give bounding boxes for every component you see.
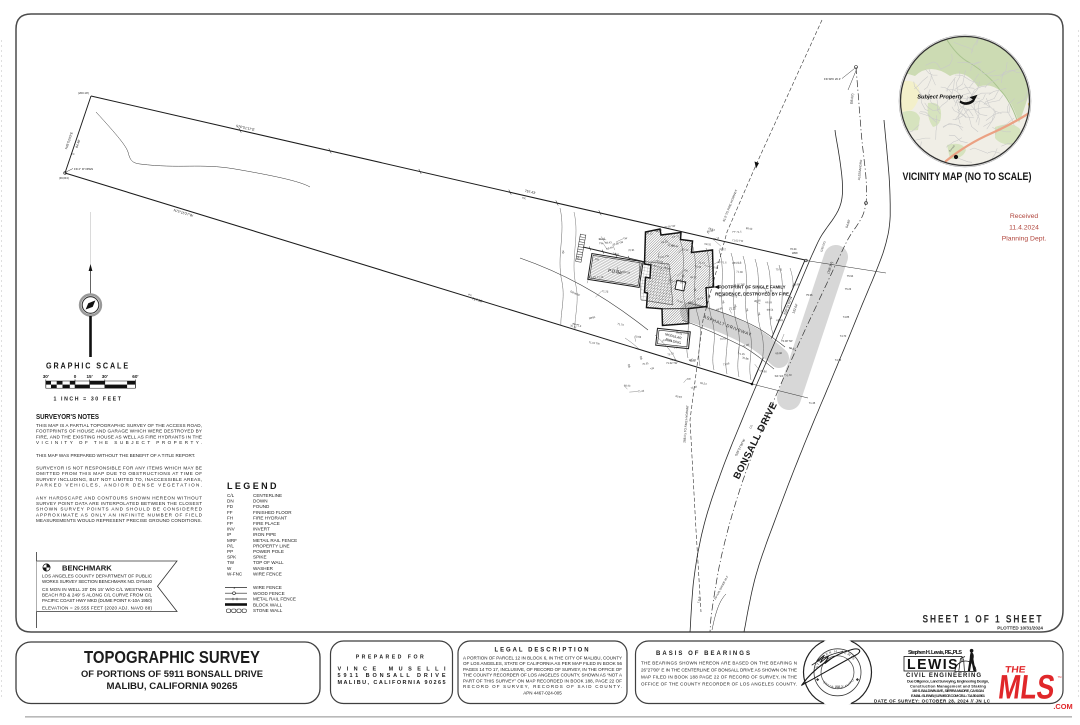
svg-text:68.98: 68.98 [775, 351, 782, 355]
svg-text:SURVEYOR'S NOTES: SURVEYOR'S NOTES [36, 412, 99, 421]
svg-text:W: W [227, 566, 232, 571]
svg-text:INVERT: INVERT [253, 527, 270, 532]
svg-text:70.91: 70.91 [775, 267, 782, 271]
svg-text:70.66: 70.66 [760, 369, 767, 374]
svg-text:METAL RAIL FENCE: METAL RAIL FENCE [253, 597, 296, 602]
svg-text:L 8812: L 8812 [832, 685, 842, 689]
svg-text:70.08 TW: 70.08 TW [781, 339, 793, 343]
svg-text:Received: Received [1010, 213, 1039, 220]
svg-text:THIS MAP IS A PARTIAL TOPOGRAP: THIS MAP IS A PARTIAL TOPOGRAPHIC SURVEY… [36, 423, 202, 428]
svg-text:FIRE HYDRANT: FIRE HYDRANT [253, 515, 287, 520]
svg-text:WIRE FENCE: WIRE FENCE [253, 585, 282, 590]
svg-text:RESIDENCE, DESTROYED BY FIRE: RESIDENCE, DESTROYED BY FIRE [715, 292, 789, 297]
svg-text:BASIS OF BEARINGS: BASIS OF BEARINGS [656, 650, 752, 657]
svg-text:WASHER: WASHER [253, 566, 274, 571]
svg-text:FIRE, AND THE EXISTING HOUSE A: FIRE, AND THE EXISTING HOUSE AS WELL AS … [36, 434, 202, 439]
svg-text:WOOD FENCE: WOOD FENCE [253, 591, 285, 596]
svg-text:POWER POLE: POWER POLE [253, 549, 284, 554]
svg-text:SPK: SPK [227, 555, 237, 560]
svg-text:0: 0 [74, 374, 77, 379]
svg-text:SURVEY INCLUDING, BUT NOT LIMI: SURVEY INCLUDING, BUT NOT LIMITED TO, IN… [36, 477, 202, 482]
svg-text:ANY HARDSCAPE AND CONTOURS SHO: ANY HARDSCAPE AND CONTOURS SHOWN HEREON … [36, 495, 202, 500]
svg-text:MALIBU, CALIFORNIA 90265: MALIBU, CALIFORNIA 90265 [338, 680, 446, 686]
svg-text:MAP FILED IN BOOK 188 PAGE 22: MAP FILED IN BOOK 188 PAGE 22 OF RECORD … [641, 675, 797, 680]
svg-text:CIVIL ENGINEERING: CIVIL ENGINEERING [906, 672, 982, 679]
svg-text:FD: FD [227, 504, 234, 509]
svg-text:PAGES 14 TO 17, INCLUSIVE, OF: PAGES 14 TO 17, INCLUSIVE, OF RECORD OF … [463, 667, 622, 672]
svg-text:70.45: 70.45 [667, 243, 674, 247]
svg-text:A PORTION OF PARCEL 12 IN BLOC: A PORTION OF PARCEL 12 IN BLOCK 6, IN TH… [463, 656, 622, 661]
svg-text:DATE OF SURVEY: OCTOBER 28, 20: DATE OF SURVEY: OCTOBER 28, 2024 // JN L… [874, 699, 991, 704]
svg-text:74.35: 74.35 [835, 358, 842, 362]
svg-text:71.02 TW: 71.02 TW [733, 282, 745, 287]
svg-text:71.02 TW: 71.02 TW [666, 361, 678, 365]
svg-text:VICINITY MAP (NO TO SCALE): VICINITY MAP (NO TO SCALE) [903, 171, 1032, 183]
svg-text:(200.19'): (200.19') [78, 91, 89, 95]
svg-text:169 S. BALDWIN AVE., SIERRA MA: 169 S. BALDWIN AVE., SIERRA MADRE, CA 91… [912, 689, 985, 693]
svg-text:FP: FP [227, 521, 233, 526]
svg-text:74.85: 74.85 [843, 315, 850, 319]
svg-text:IP: IP [227, 532, 231, 537]
svg-text:PLOTTED 10/31/2024: PLOTTED 10/31/2024 [997, 626, 1043, 631]
svg-text:71.73: 71.73 [597, 275, 604, 279]
svg-text:THIS MAP WAS PREPARED WITHOUT: THIS MAP WAS PREPARED WITHOUT THE BENEFI… [36, 453, 195, 458]
svg-text:APPROXIMATE AS ONLY AN INFINIT: APPROXIMATE AS ONLY AN INFINITE NUMBER O… [36, 512, 203, 517]
svg-text:15': 15' [86, 374, 92, 379]
svg-text:FF 71.5: FF 71.5 [663, 338, 673, 343]
svg-text:69.12: 69.12 [690, 275, 697, 279]
svg-text:FF 71.5: FF 71.5 [732, 230, 742, 234]
svg-text:MEASUREMENTS WOULD REPRESENT P: MEASUREMENTS WOULD REPRESENT PRECISE GRO… [36, 518, 202, 523]
svg-text:70.12: 70.12 [646, 231, 653, 235]
svg-text:60': 60' [132, 374, 138, 379]
svg-text:CENTERLINE: CENTERLINE [253, 493, 282, 498]
svg-text:LOS ANGELES COUNTY DEPARTMENT: LOS ANGELES COUNTY DEPARTMENT OF PUBLIC [42, 574, 153, 579]
svg-text:APN 4467-024-005: APN 4467-024-005 [523, 691, 562, 696]
svg-text:IRON PIPE: IRON PIPE [253, 532, 276, 537]
svg-text:30': 30' [43, 374, 49, 379]
svg-text:FH: FH [227, 515, 233, 520]
svg-text:75.23: 75.23 [845, 287, 852, 291]
svg-text:RECORD OF SURVEY, RECORDS OF S: RECORD OF SURVEY, RECORDS OF SAID COUNTY… [463, 684, 622, 689]
svg-text:PART OF THIS SURVEY” ON MAP RE: PART OF THIS SURVEY” ON MAP RECORDED IN … [463, 678, 622, 683]
svg-text:TW: TW [227, 560, 235, 565]
svg-text:30': 30' [102, 374, 108, 379]
svg-text:70.24: 70.24 [790, 247, 797, 251]
svg-text:LEWIS: LEWIS [907, 657, 959, 673]
svg-text:ELEVATION = 29.555 FEET (2020: ELEVATION = 29.555 FEET (2020 ADJ. NAVD … [42, 605, 153, 610]
svg-text:GRAPHIC SCALE: GRAPHIC SCALE [46, 361, 130, 371]
svg-text:DN: DN [227, 499, 234, 504]
svg-text:BLOCK WALL: BLOCK WALL [253, 602, 283, 607]
svg-text:S/F S/F: S/F S/F [775, 374, 784, 378]
svg-text:Planning Dept.: Planning Dept. [1002, 236, 1047, 243]
svg-text:75.94: 75.94 [847, 274, 854, 278]
svg-text:SHEET 1 OF 1 SHEET: SHEET 1 OF 1 SHEET [923, 614, 1044, 626]
svg-text:PARKED VEHICLES, AND/OR DENSE: PARKED VEHICLES, AND/OR DENSE VEGETATION… [36, 483, 202, 488]
svg-text:METAIL RAIL FENCE: METAIL RAIL FENCE [253, 538, 297, 543]
svg-text:WRF: WRF [792, 251, 798, 255]
svg-text:MLS: MLS [996, 669, 1057, 707]
svg-text:70.12: 70.12 [682, 247, 689, 252]
svg-text:FOOTPRINTS OF HOUSE AND GARAGE: FOOTPRINTS OF HOUSE AND GARAGE WHICH WER… [36, 429, 202, 434]
svg-text:C/L: C/L [227, 493, 235, 498]
svg-text:DOWN: DOWN [253, 499, 268, 504]
svg-text:PP: PP [227, 549, 233, 554]
svg-text:75.36: 75.36 [806, 293, 813, 297]
svg-text:FINISHED FLOOR: FINISHED FLOOR [253, 510, 292, 515]
svg-text:68.98: 68.98 [793, 282, 800, 286]
svg-text:MALIBU, CALIFORNIA 90265: MALIBU, CALIFORNIA 90265 [107, 681, 239, 692]
svg-text:69.54: 69.54 [767, 308, 774, 312]
svg-text:69.33: 69.33 [598, 237, 605, 241]
svg-text:71.25: 71.25 [738, 352, 745, 356]
svg-text:SURVEY POINT DATA ARE INTERPOL: SURVEY POINT DATA ARE INTERPOLATED BETWE… [36, 501, 202, 506]
svg-text:TOP OF WALL: TOP OF WALL [253, 560, 284, 565]
svg-text:71.08: 71.08 [736, 270, 743, 274]
svg-text:71.73: 71.73 [698, 261, 705, 266]
svg-text:SPIKE: SPIKE [253, 555, 267, 560]
svg-text:TW: TW [669, 278, 674, 282]
svg-text:26°27'00" E IN THE CENTERLINE: 26°27'00" E IN THE CENTERLINE OF BONSALL… [641, 668, 797, 673]
svg-text:OMITTED FROM THIS MAP DUE TO O: OMITTED FROM THIS MAP DUE TO OBSTRUCTION… [36, 471, 202, 476]
svg-text:71.45: 71.45 [809, 401, 816, 405]
svg-text:SURVEYOR IS NOT RESPONSIBLE FO: SURVEYOR IS NOT RESPONSIBLE FOR ANY ITEM… [36, 466, 202, 471]
svg-text:FD 2" IP OPEN: FD 2" IP OPEN [74, 167, 93, 171]
svg-text:MRF: MRF [227, 538, 237, 543]
svg-text:INV: INV [227, 527, 236, 532]
svg-text:OF PORTIONS OF 5911 BONSALL DR: OF PORTIONS OF 5911 BONSALL DRIVE [81, 669, 264, 680]
svg-text:BEACH RD & 249' S ALONG C/L CU: BEACH RD & 249' S ALONG C/L CURVE FROM C… [42, 593, 152, 598]
svg-text:68.43: 68.43 [624, 383, 631, 387]
svg-text:71.25: 71.25 [729, 307, 736, 311]
svg-text:70.45: 70.45 [694, 264, 701, 269]
svg-text:FF 71.5: FF 71.5 [732, 260, 742, 265]
svg-text:P/L: P/L [227, 543, 234, 548]
svg-text:TC: TC [71, 152, 75, 156]
svg-text:THE BEARINGS SHOWN HEREON ARE: THE BEARINGS SHOWN HEREON ARE BASED ON T… [641, 661, 797, 666]
svg-text:W-FNC: W-FNC [227, 571, 243, 576]
svg-text:STONE WALL: STONE WALL [253, 608, 283, 613]
svg-text:69.12: 69.12 [719, 247, 726, 251]
svg-text:LEGAL DESCRIPTION: LEGAL DESCRIPTION [495, 647, 591, 654]
svg-text:FOOTPRINT OF SINGLE FAMILY: FOOTPRINT OF SINGLE FAMILY [718, 285, 785, 290]
svg-text:Subject Property: Subject Property [917, 95, 963, 101]
svg-text:69.33: 69.33 [765, 300, 772, 304]
svg-text:74.70: 74.70 [840, 334, 847, 338]
svg-text:FF 71.5: FF 71.5 [717, 260, 727, 264]
svg-text:70.66: 70.66 [634, 334, 641, 339]
svg-text:TM: TM [1058, 675, 1062, 679]
svg-text:(R3,R4): (R3,R4) [59, 176, 69, 180]
svg-text:OFFICE OF THE COUNTY RECORDER: OFFICE OF THE COUNTY RECORDER OF LOS ANG… [641, 682, 797, 687]
svg-text:x: x [234, 586, 236, 590]
svg-text:CS MON IN WELL 20' DN 15' W/O: CS MON IN WELL 20' DN 15' W/O C/L WESTWA… [42, 587, 153, 592]
svg-text:TW: TW [599, 241, 604, 245]
svg-text:THE COUNTY RECORDER OF LOS ANG: THE COUNTY RECORDER OF LOS ANGELES COUNT… [463, 673, 622, 678]
svg-text:FIRE PLACE: FIRE PLACE [253, 521, 280, 526]
svg-text:WIRE FENCE: WIRE FENCE [253, 571, 282, 576]
svg-text:Stephen H. Lewis, P.E.,PLS: Stephen H. Lewis, P.E.,PLS [908, 650, 962, 656]
svg-text:70.66: 70.66 [754, 298, 761, 303]
svg-text:.COM: .COM [1053, 702, 1072, 711]
svg-text:Construction Management and St: Construction Management and Staking [910, 684, 987, 688]
svg-text:TOPOGRAPHIC SURVEY: TOPOGRAPHIC SURVEY [84, 647, 260, 667]
svg-text:PACIFIC COAST HWY MKD (DUME PO: PACIFIC COAST HWY MKD (DUME POINT K-10A … [42, 598, 153, 603]
svg-text:1 INCH = 30 FEET: 1 INCH = 30 FEET [54, 397, 123, 403]
svg-text:FD SPK 26.3': FD SPK 26.3' [824, 77, 841, 81]
svg-text:68.43: 68.43 [776, 318, 783, 322]
svg-text:VINCE MUSELLI: VINCE MUSELLI [338, 666, 446, 672]
svg-text:WORKS SURVEY SECTION BENCHMARK: WORKS SURVEY SECTION BENCHMARK NO. DY544… [42, 579, 152, 584]
svg-text:Due Diligence, Land Surveying,: Due Diligence, Land Surveying, Engineeri… [907, 680, 989, 684]
svg-text:SHOWN SURVEY POINTS AND SHOULD: SHOWN SURVEY POINTS AND SHOULD BE CONSID… [36, 507, 203, 512]
svg-text:OF LOS ANGELES, STATE OF CALIF: OF LOS ANGELES, STATE OF CALIFORNIA AS P… [463, 661, 622, 666]
svg-text:71.02 TW: 71.02 TW [732, 238, 744, 243]
svg-text:11.4.2024: 11.4.2024 [1009, 225, 1039, 232]
svg-text:PROPERTY LINE: PROPERTY LINE [253, 543, 290, 548]
svg-text:FOUND: FOUND [253, 504, 270, 509]
svg-text:E-MAIL: SLEWIS@LEWISCE.COM CEL: E-MAIL: SLEWIS@LEWISCE.COM CELL: 714-504… [911, 694, 985, 698]
svg-text:FF: FF [227, 510, 233, 515]
svg-text:70.91: 70.91 [628, 248, 635, 252]
svg-text:LEGEND: LEGEND [227, 481, 279, 491]
svg-text:BENCHMARK: BENCHMARK [62, 564, 112, 573]
